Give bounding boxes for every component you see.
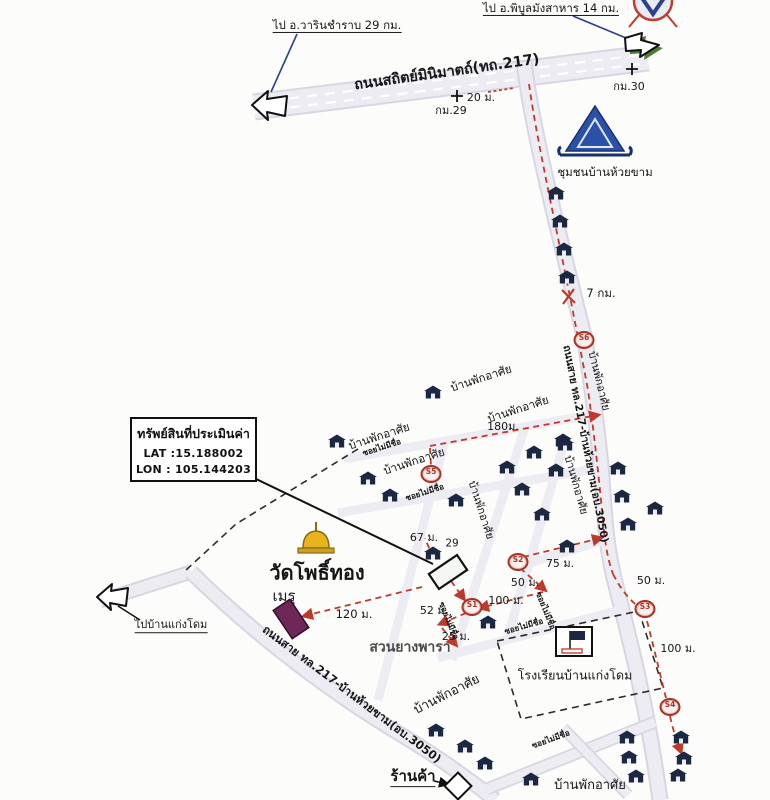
route-prop-s1 xyxy=(451,581,464,599)
temple-icon xyxy=(559,106,632,155)
property-box-title: ทรัพย์สินที่ประเมินค่า xyxy=(132,424,255,444)
station-marker-s2: S2 xyxy=(508,553,529,571)
route-100m-b xyxy=(647,621,666,698)
property-assessment-box: ทรัพย์สินที่ประเมินค่า LAT :15.188002 LO… xyxy=(130,417,257,482)
property-longitude: LON : 105.144203 xyxy=(132,463,255,476)
shop-label-label: ร้านค้า xyxy=(390,769,435,787)
dist-120m-label: 120 ม. xyxy=(336,608,373,620)
property-parcel-icon xyxy=(429,555,467,589)
dist-20m-label: 20 ม. xyxy=(467,92,495,104)
wat-pho-thong-label: วัดโพธิ์ทอง xyxy=(269,563,364,584)
leader-shop xyxy=(434,781,447,784)
community-huai-kham-label: ชุมชนบ้านห้วยขาม xyxy=(557,166,652,178)
meru-label-label: เมรุ xyxy=(272,589,295,605)
map-graphics xyxy=(0,0,770,800)
rubber-plantation-label: สวนยางพารา xyxy=(369,641,450,656)
to-ban-kaeng-dome-label: ไปบ้านแก่งโดม xyxy=(135,619,208,633)
km-29-label: กม.29 xyxy=(435,105,466,117)
property-location-map: ทรัพย์สินที่ประเมินค่า LAT :15.188002 LO… xyxy=(0,0,770,800)
dist-180m-label: 180ม. xyxy=(487,421,519,433)
school-ban-kaeng-dome-label: โรงเรียนบ้านแก่งโดม xyxy=(518,668,633,681)
dist-75m-label: 75 ม. xyxy=(546,558,574,570)
station-marker-s1: S1 xyxy=(462,598,483,616)
dist-7km-label: 7 กม. xyxy=(586,287,615,299)
residences-b2-label: บ้านพักอาศัย xyxy=(554,779,626,793)
pagoda-icon xyxy=(298,522,334,553)
station-marker-s3: S3 xyxy=(635,600,656,618)
dist-100m-b-label: 100 ม. xyxy=(660,643,695,655)
dist-50m-b-label: 50 ม. xyxy=(637,575,665,587)
house-number-29-label: 29 xyxy=(445,538,458,549)
property-pointer-line xyxy=(252,477,433,564)
compass-icon xyxy=(629,0,677,27)
leader-warin xyxy=(271,34,297,92)
dist-100m-a-label: 100 ม. xyxy=(488,595,523,607)
dist-67m-label: 67 ม. xyxy=(410,532,438,544)
station-marker-s4: S4 xyxy=(660,698,681,716)
school-flag-icon xyxy=(556,627,592,656)
station-marker-s5: S5 xyxy=(421,465,442,483)
dest-phibun-label: ไป อ.พิบูลมังสาหาร 14 กม. xyxy=(483,2,619,16)
leader-phibun xyxy=(573,16,626,38)
property-latitude: LAT :15.188002 xyxy=(132,447,255,460)
dest-warin-label: ไป อ.วารินชำราบ 29 กม. xyxy=(273,19,402,33)
dist-50m-a-label: 50 ม. xyxy=(511,577,539,589)
dist-52m-label: 52 ม. xyxy=(420,605,448,617)
station-marker-s6: S6 xyxy=(574,331,595,349)
km-30-label: กม.30 xyxy=(613,81,644,93)
